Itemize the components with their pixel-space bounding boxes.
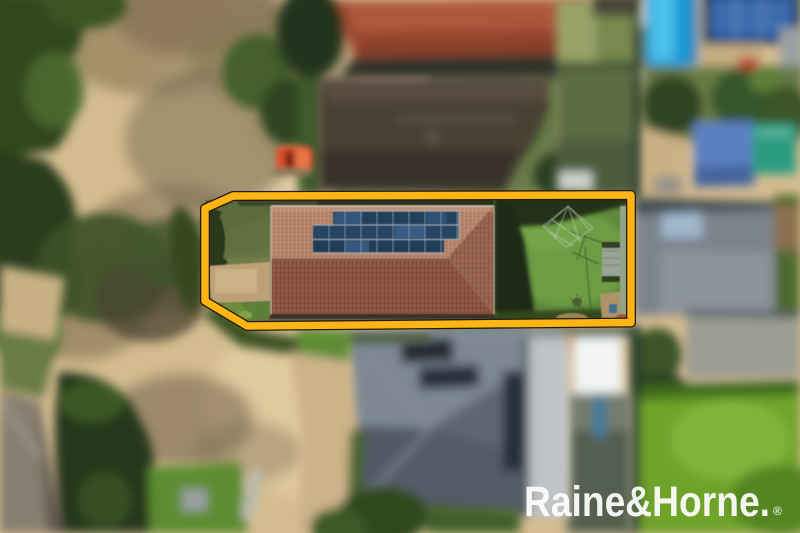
svg-text:®: ® xyxy=(773,504,782,518)
svg-text:Raine&Horne.: Raine&Horne. xyxy=(524,478,770,526)
